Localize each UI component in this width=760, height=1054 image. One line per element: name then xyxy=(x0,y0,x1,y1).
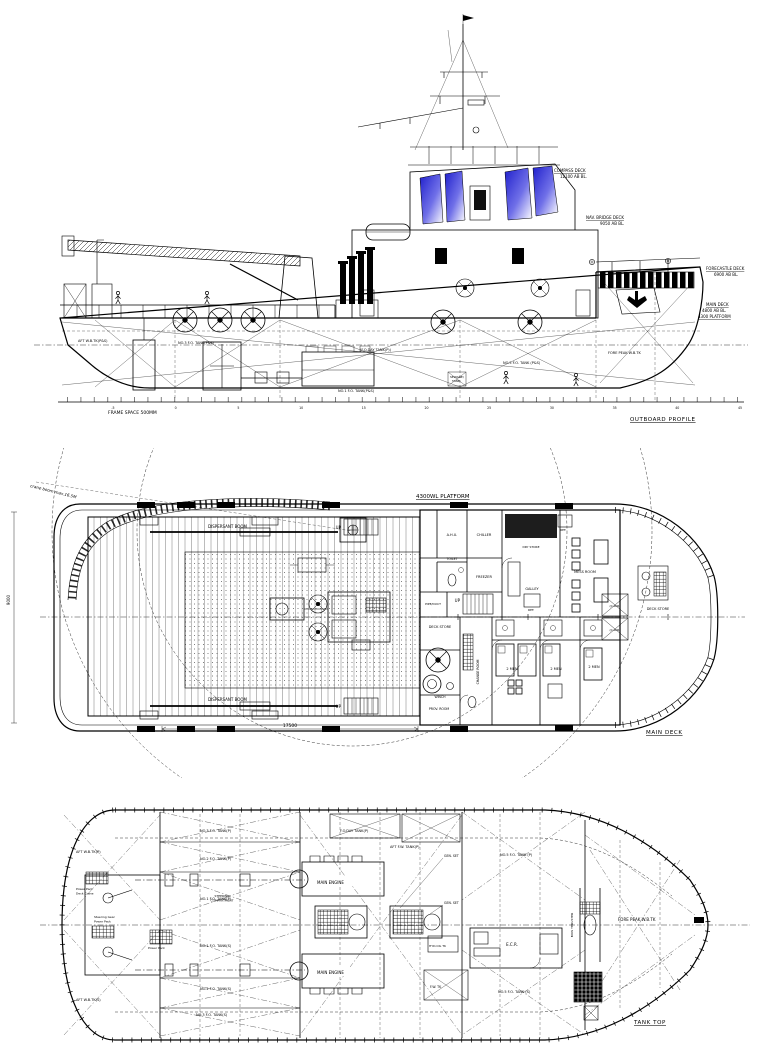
label-compass-deck-elev: 12100 AB BL. xyxy=(560,174,587,179)
mess-room-furniture xyxy=(572,538,608,612)
label-fore-peak-tt: FORE PEAK W.B.TK xyxy=(618,917,656,922)
label-pipe-duct: PIPE/DUCT xyxy=(425,602,441,606)
stairs-center xyxy=(463,594,493,614)
label-fore-peak-tank: FORE PEAK W.B.TK xyxy=(608,351,641,355)
label-nav-bridge-deck: NAV. BRIDGE DECK xyxy=(586,215,624,220)
label-chain-locker-s: (C.LKR) xyxy=(609,628,620,632)
tank-cross-lines xyxy=(62,278,695,387)
label-dry-store: DRY STORE xyxy=(522,545,539,549)
ref-box-2 xyxy=(524,594,540,607)
dimension-line-9000 xyxy=(11,512,17,723)
propulsion-cutaway xyxy=(133,318,374,390)
label-crane-boom-note: crane boom max.16.5M xyxy=(30,483,78,499)
exhaust-pipes xyxy=(336,247,378,318)
title-outboard-profile: OUTBOARD PROFILE xyxy=(630,417,696,423)
label-dim-17500: 17500 xyxy=(283,723,297,729)
label-no2-fo-s: NO.2 F.O. TANK(S) xyxy=(200,987,232,991)
label-hyd-oil: HYD.OIL TK xyxy=(429,944,447,948)
mast xyxy=(358,14,508,150)
label-main-engine-s: MAIN ENGINE xyxy=(317,970,344,975)
label-main-deck-elev: 4800 AB BL. xyxy=(702,308,726,313)
galley-range xyxy=(508,562,520,596)
steering-compartment xyxy=(85,872,172,975)
deckhouse-partitions xyxy=(420,510,620,725)
label-no2-fo-p: NO.2 F.O. TANK(P) xyxy=(200,857,232,861)
label-deck-store-2: DECK STORE xyxy=(647,607,670,611)
bridge-windows xyxy=(420,166,558,224)
transverse-bulkheads xyxy=(160,812,585,1038)
label-galley: GALLEY xyxy=(525,587,539,591)
switchboard xyxy=(574,972,602,1002)
frame-number: -5 xyxy=(111,406,114,410)
label-up-center: UP xyxy=(455,598,461,603)
label-no1-fo-s: NO.1 F.O. TANK(S) xyxy=(200,944,232,948)
label-gen-set-1: GEN. SET xyxy=(444,854,459,858)
winch-wheel xyxy=(426,648,450,672)
label-main-engine-p: MAIN ENGINE xyxy=(317,880,344,885)
main-engine-port xyxy=(290,856,384,896)
label-aft-wb-s: AFT W.B.TK(S) xyxy=(76,998,101,1002)
frame-numbers: -5 0 5 10 15 20 25 30 35 40 45 xyxy=(111,406,742,410)
house-window-2 xyxy=(512,248,524,264)
label-forecastle-elev: 6900 AB BL. xyxy=(714,272,738,277)
label-chiller: CHILLER xyxy=(477,533,492,537)
label-cabin-1: 2 MEN xyxy=(506,667,518,671)
label-compass-deck: COMPASS DECK xyxy=(554,168,586,173)
label-toilet: TOILET xyxy=(445,557,457,561)
label-steering-2: COMPARTMENT xyxy=(211,899,234,903)
label-dispersant-boom-stbd: DISPERSANT BOOM xyxy=(208,697,248,702)
mast-flag-icon xyxy=(463,15,474,21)
crane-cylinder xyxy=(230,264,298,300)
label-cabin-3: 2 MEN xyxy=(588,665,600,669)
bulkhead-lines xyxy=(175,272,655,400)
bow-chock xyxy=(694,917,704,923)
house-door-fwd xyxy=(576,290,590,316)
label-bow-thruster: BOW THRUSTER xyxy=(570,913,574,937)
title-main-deck: MAIN DECK xyxy=(646,730,683,736)
label-no3-fo-s: NO.3 F.O. TANK(S) xyxy=(196,1013,228,1017)
windlass xyxy=(638,566,668,600)
label-freezer: FREEZER xyxy=(476,575,492,579)
label-no3-fo-p: NO.3 F.O. TANK(P) xyxy=(200,829,232,833)
frame-number: 15 xyxy=(362,406,366,410)
forecastle-freeing-ports xyxy=(598,272,694,288)
label-gen-set-2: GEN. SET xyxy=(444,901,459,905)
main-engine-profile xyxy=(302,352,374,386)
label-no3-fo-tank: NO.3 F.O. TANK(P&S) xyxy=(178,341,215,345)
title-tank-top: TANK TOP xyxy=(633,1020,666,1026)
label-sg-pp-1: Steering Gear xyxy=(94,915,116,919)
label-prov-room: PROV. ROOM xyxy=(429,707,450,711)
deckhouse-plan xyxy=(420,510,620,725)
frame-number: 5 xyxy=(237,406,239,410)
cabin-fixtures xyxy=(460,558,602,703)
label-deck-store-1: DECK STORE xyxy=(429,625,452,629)
frame-number: 35 xyxy=(613,406,617,410)
label-ref-1: REF. xyxy=(560,528,566,532)
label-sewage-2: TANK xyxy=(451,379,461,383)
label-aft-fw-p: AFT F.W. TANK(P) xyxy=(390,845,420,849)
frame-ticks xyxy=(58,397,744,402)
label-4300wl-platform: 4300WL PLATFORM xyxy=(416,494,470,500)
label-ref-2: REF. xyxy=(528,608,534,612)
label-no5-fo-tank: NO.5 F.O. TANK (P&S) xyxy=(503,361,541,365)
label-mess-room: MESS ROOM xyxy=(574,570,596,574)
gen-set-1 xyxy=(315,906,367,938)
label-fo-day-tank: (F.O.DAY TANK(P)) xyxy=(360,348,392,352)
dry-store-shelving xyxy=(505,514,557,538)
frame-number: 25 xyxy=(487,406,491,410)
label-ahu: A.H.U. xyxy=(447,533,458,537)
toilet-fixture xyxy=(448,574,456,586)
dome-antenna-icon xyxy=(473,127,479,133)
drawing-sheet: -5 0 5 10 15 20 25 30 35 40 45 COMPASS D… xyxy=(0,0,760,1054)
label-dispersant-boom-port: DISPERSANT BOOM xyxy=(208,524,248,529)
label-change-room: CHANGE ROOM xyxy=(476,659,480,684)
frame-number: 20 xyxy=(424,406,428,410)
gen-set-leaders xyxy=(400,858,443,914)
power-pack-unit xyxy=(150,930,172,944)
rudder xyxy=(133,340,155,390)
label-chain-locker-p: (C.LKR) xyxy=(609,604,620,608)
label-winch: WINCH xyxy=(434,695,446,699)
label-pp-crane-1: Power Pack xyxy=(76,887,93,891)
label-frame-space: FRAME SPACE 500MM xyxy=(108,410,157,416)
label-ecr: E.C.R. xyxy=(506,942,518,947)
house-window-1 xyxy=(435,248,447,264)
frame-number: 40 xyxy=(675,406,679,410)
frame-number: 10 xyxy=(299,406,303,410)
outboard-profile-view: -5 0 5 10 15 20 25 30 35 40 45 COMPASS D… xyxy=(34,14,748,423)
label-fo-day-p: F.O.DAY TANK(P) xyxy=(340,829,369,833)
label-aft-wb-tank: AFT W.B.TK(P&S) xyxy=(78,339,108,343)
label-main-deck: MAIN DECK xyxy=(706,302,729,307)
label-nav-bridge-elev: 9050 AB BL. xyxy=(600,221,624,226)
radar-icon xyxy=(468,100,484,105)
tank-top-plan-view: AFT W.B.TK(P) AFT W.B.TK(S) NO.3 F.O. TA… xyxy=(40,810,750,1040)
bridge-door-glass xyxy=(474,190,486,210)
label-power-pack: Power Pack xyxy=(148,946,165,950)
deckhouse-profile xyxy=(352,230,598,318)
label-cabin-2: 2 MEN xyxy=(550,667,562,671)
label-forecastle-deck: FORECASTLE DECK xyxy=(706,266,745,271)
ship-general-arrangement-drawing: -5 0 5 10 15 20 25 30 35 40 45 COMPASS D… xyxy=(0,0,760,1054)
capstan xyxy=(423,675,441,693)
label-pp-crane-2: Deck Crane xyxy=(76,892,94,896)
label-sg-pp-2: Power Pack xyxy=(94,920,111,924)
wc-fixture xyxy=(468,697,476,708)
frame-number: 45 xyxy=(738,406,742,410)
lockers xyxy=(463,634,473,670)
label-no5-fo-s: NO.5 F.O. TANK (S) xyxy=(498,990,531,994)
label-dim-9000: 9000 xyxy=(6,594,11,605)
ecr-room xyxy=(470,928,562,968)
compass-deck-railing xyxy=(410,146,558,164)
label-4300-platform: 4300 PLATFORM xyxy=(698,314,731,319)
label-no5-fo-p: NO.5 F.O. TANK (P) xyxy=(500,853,533,857)
label-aft-wb-p: AFT W.B.TK(P) xyxy=(76,850,101,854)
frame-grid-lines xyxy=(200,812,660,1038)
label-steering-1: STEERING xyxy=(214,894,230,898)
main-deck-plan-view: 4300WL PLATFORM crane boom max.16.5M DIS… xyxy=(6,231,745,831)
gen-set-2 xyxy=(390,906,442,938)
power-pack-deck-crane-unit xyxy=(86,872,108,884)
steering-gear-power-pack-unit xyxy=(92,926,114,938)
frame-number: 30 xyxy=(550,406,554,410)
label-no1-fo-tank: NO.1 F.O. TANK(P&S) xyxy=(338,389,375,393)
anchor-icon xyxy=(627,291,647,308)
aft-bulwark-stanchions xyxy=(60,305,335,318)
frame-number: 0 xyxy=(175,406,177,410)
label-up-stbd: UP xyxy=(336,704,342,709)
label-up-port: UP xyxy=(336,525,342,530)
crane-lattice-boom xyxy=(68,240,300,266)
label-fw-tk: F.W. TK xyxy=(430,985,442,989)
